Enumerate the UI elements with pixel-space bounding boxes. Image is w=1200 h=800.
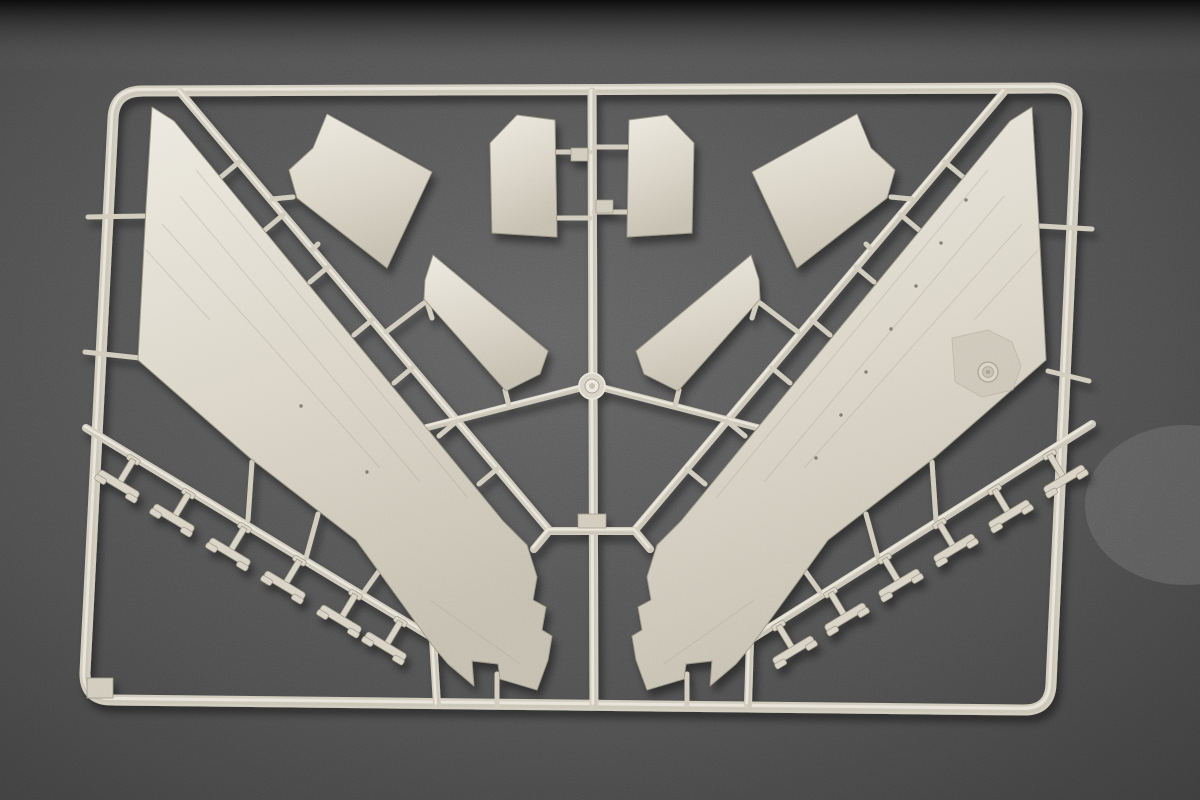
photo-grain (0, 0, 1200, 800)
screenshot (0, 0, 1200, 800)
photo-canvas (0, 0, 1200, 800)
